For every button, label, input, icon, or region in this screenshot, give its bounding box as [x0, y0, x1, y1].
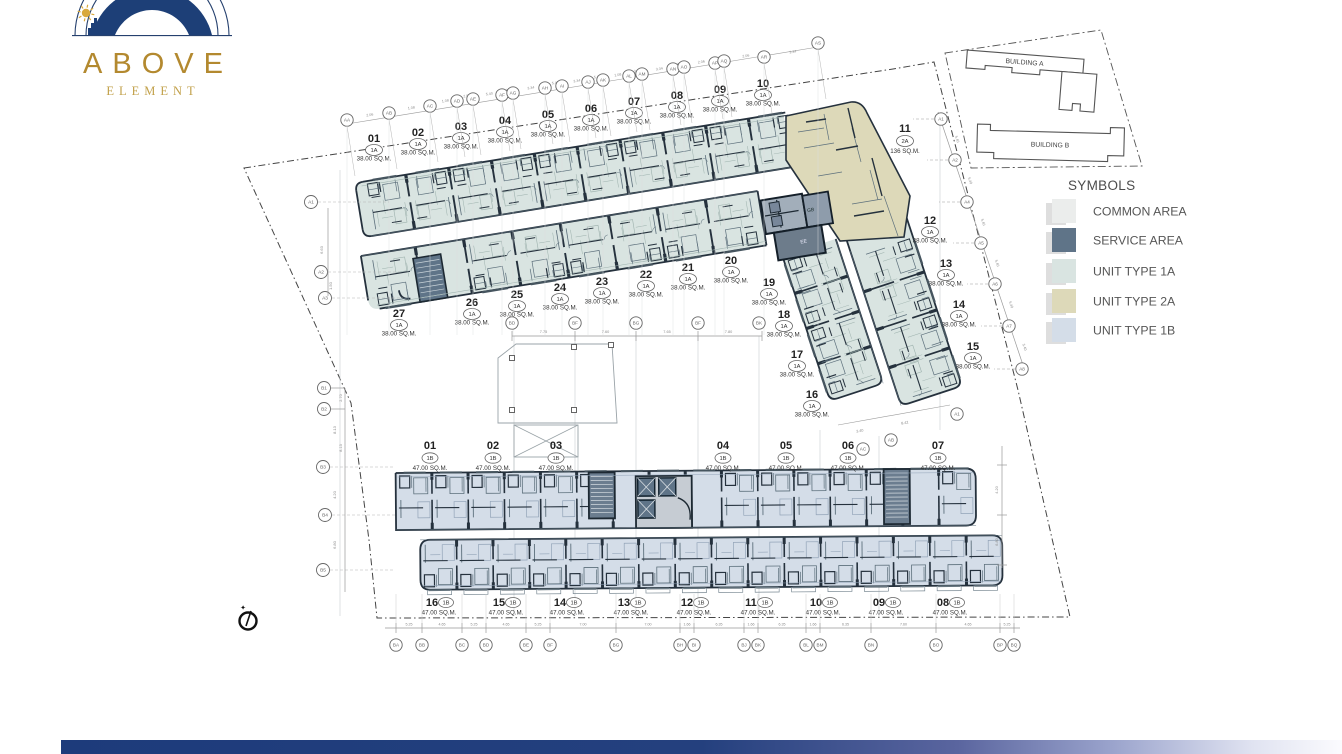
svg-text:7.80: 7.80 — [725, 330, 732, 334]
svg-text:04: 04 — [717, 440, 730, 452]
svg-text:22: 22 — [640, 269, 652, 281]
svg-text:38.00 SQ.M.: 38.00 SQ.M. — [401, 150, 436, 157]
svg-text:BC: BC — [459, 643, 466, 648]
svg-text:BB: BB — [419, 643, 425, 648]
svg-text:1B: 1B — [844, 456, 851, 462]
svg-text:14: 14 — [554, 597, 567, 609]
svg-text:1A: 1A — [684, 277, 691, 283]
svg-text:1B: 1B — [761, 601, 768, 607]
svg-text:6.80: 6.80 — [995, 538, 999, 545]
svg-text:1B: 1B — [826, 601, 833, 607]
svg-text:47.00 SQ.M.: 47.00 SQ.M. — [706, 465, 741, 472]
svg-text:AK: AK — [600, 78, 607, 83]
svg-text:2.70: 2.70 — [339, 394, 343, 401]
svg-text:UNIT TYPE 1B: UNIT TYPE 1B — [1093, 324, 1175, 338]
svg-text:BK: BK — [756, 321, 763, 326]
svg-text:BG: BG — [633, 321, 640, 326]
svg-text:1B: 1B — [570, 601, 577, 607]
svg-text:03: 03 — [550, 440, 562, 452]
svg-text:2A: 2A — [901, 139, 908, 145]
svg-text:BK: BK — [755, 643, 762, 648]
svg-text:1A: 1A — [759, 93, 766, 99]
svg-text:A7: A7 — [1006, 324, 1012, 329]
svg-text:19: 19 — [763, 277, 775, 289]
svg-text:1A: 1A — [457, 136, 464, 142]
svg-text:1B: 1B — [782, 456, 789, 462]
svg-text:38.00 SQ.M.: 38.00 SQ.M. — [746, 101, 781, 108]
svg-text:UNIT TYPE 2A: UNIT TYPE 2A — [1093, 295, 1176, 309]
svg-text:26: 26 — [466, 297, 478, 309]
svg-text:02: 02 — [487, 440, 499, 452]
svg-text:09: 09 — [873, 597, 885, 609]
svg-text:1A: 1A — [673, 105, 680, 111]
svg-text:✦: ✦ — [240, 604, 246, 612]
svg-text:47.00 SQ.M.: 47.00 SQ.M. — [921, 465, 956, 472]
svg-text:1A: 1A — [942, 273, 949, 279]
svg-text:4.20: 4.20 — [332, 490, 337, 499]
svg-text:1A: 1A — [793, 364, 800, 370]
svg-text:AB: AB — [888, 438, 894, 443]
svg-text:AO: AO — [681, 65, 688, 70]
svg-text:1A: 1A — [780, 324, 787, 330]
svg-text:21: 21 — [682, 262, 694, 274]
svg-text:38.00 SQ.M.: 38.00 SQ.M. — [444, 144, 479, 151]
svg-text:AB: AB — [386, 111, 392, 116]
svg-text:38.00 SQ.M.: 38.00 SQ.M. — [956, 364, 991, 371]
svg-text:ELEMENT: ELEMENT — [106, 84, 199, 98]
svg-text:12: 12 — [681, 597, 693, 609]
svg-text:5.25: 5.25 — [406, 623, 413, 627]
svg-text:5.25: 5.25 — [1004, 623, 1011, 627]
svg-text:38.00 SQ.M.: 38.00 SQ.M. — [629, 292, 664, 299]
svg-text:BO: BO — [933, 643, 940, 648]
svg-text:AD: AD — [454, 99, 461, 104]
svg-text:1A: 1A — [955, 314, 962, 320]
svg-text:1B: 1B — [719, 456, 726, 462]
svg-text:08: 08 — [937, 597, 949, 609]
svg-text:AH: AH — [542, 86, 548, 91]
svg-text:1A: 1A — [598, 291, 605, 297]
svg-text:B2: B2 — [321, 407, 327, 413]
svg-text:38.00 SQ.M.: 38.00 SQ.M. — [382, 331, 417, 338]
svg-text:47.00 SQ.M.: 47.00 SQ.M. — [806, 610, 841, 617]
svg-text:COMMON AREA: COMMON AREA — [1093, 205, 1187, 219]
svg-text:8.13: 8.13 — [339, 444, 343, 451]
svg-text:38.00 SQ.M.: 38.00 SQ.M. — [531, 132, 566, 139]
svg-text:136 SQ.M.: 136 SQ.M. — [890, 148, 920, 155]
svg-text:AC: AC — [860, 447, 867, 452]
svg-text:6.35: 6.35 — [779, 623, 786, 627]
svg-text:BD: BD — [509, 321, 516, 326]
svg-text:7.75: 7.75 — [540, 330, 547, 334]
svg-text:05: 05 — [780, 440, 792, 452]
svg-text:1.66: 1.66 — [748, 623, 755, 627]
svg-text:38.00 SQ.M.: 38.00 SQ.M. — [671, 285, 706, 292]
svg-text:BM: BM — [817, 643, 824, 648]
svg-text:47.00 SQ.M.: 47.00 SQ.M. — [422, 610, 457, 617]
svg-text:BF: BF — [572, 321, 578, 326]
svg-text:47.00 SQ.M.: 47.00 SQ.M. — [413, 465, 448, 472]
svg-text:BL: BL — [803, 643, 809, 648]
svg-text:47.00 SQ.M.: 47.00 SQ.M. — [489, 610, 524, 617]
svg-text:BH: BH — [677, 643, 683, 648]
svg-text:AE: AE — [470, 97, 476, 102]
svg-text:A1: A1 — [308, 200, 314, 206]
svg-text:AC: AC — [427, 104, 434, 109]
svg-text:38.00 SQ.M.: 38.00 SQ.M. — [543, 305, 578, 312]
svg-text:47.00 SQ.M.: 47.00 SQ.M. — [550, 610, 585, 617]
svg-text:20: 20 — [725, 255, 737, 267]
svg-text:1B: 1B — [634, 601, 641, 607]
svg-text:23: 23 — [596, 276, 608, 288]
svg-text:BG: BG — [613, 643, 620, 648]
svg-text:38.00 SQ.M.: 38.00 SQ.M. — [455, 320, 490, 327]
svg-text:25: 25 — [511, 289, 523, 301]
svg-text:6.80: 6.80 — [332, 540, 337, 549]
svg-text:38.00 SQ.M.: 38.00 SQ.M. — [795, 412, 830, 419]
svg-text:38.00 SQ.M.: 38.00 SQ.M. — [942, 322, 977, 329]
svg-text:1.66: 1.66 — [684, 623, 691, 627]
svg-text:A1: A1 — [938, 117, 944, 122]
svg-text:16: 16 — [806, 389, 818, 401]
svg-text:24: 24 — [554, 282, 567, 294]
svg-text:AG: AG — [510, 91, 517, 96]
svg-text:BP: BP — [997, 643, 1003, 648]
svg-text:A8: A8 — [1019, 367, 1025, 372]
svg-text:A3: A3 — [322, 296, 328, 302]
svg-text:1B: 1B — [442, 601, 449, 607]
svg-text:A1: A1 — [954, 412, 960, 417]
svg-text:1.66: 1.66 — [810, 623, 817, 627]
svg-text:47.00 SQ.M.: 47.00 SQ.M. — [869, 610, 904, 617]
svg-text:1A: 1A — [468, 312, 475, 318]
svg-text:B1: B1 — [321, 386, 327, 392]
svg-text:1.50: 1.50 — [328, 281, 333, 290]
svg-text:AL: AL — [626, 74, 632, 79]
svg-text:1B: 1B — [426, 456, 433, 462]
svg-text:4.65: 4.65 — [965, 623, 972, 627]
svg-text:ABOVE: ABOVE — [83, 48, 233, 80]
svg-text:47.00 SQ.M.: 47.00 SQ.M. — [933, 610, 968, 617]
svg-text:02: 02 — [412, 127, 424, 139]
svg-text:47.00 SQ.M.: 47.00 SQ.M. — [831, 465, 866, 472]
svg-text:BD: BD — [483, 643, 490, 648]
svg-text:01: 01 — [368, 133, 380, 145]
svg-text:6.35: 6.35 — [842, 623, 849, 627]
svg-text:38.00 SQ.M.: 38.00 SQ.M. — [500, 312, 535, 319]
svg-text:1B: 1B — [953, 601, 960, 607]
svg-text:1A: 1A — [642, 284, 649, 290]
svg-text:47.00 SQ.M.: 47.00 SQ.M. — [769, 465, 804, 472]
svg-text:AR: AR — [761, 55, 768, 60]
svg-text:BI: BI — [692, 643, 696, 648]
svg-text:5.25: 5.25 — [535, 623, 542, 627]
svg-text:AM: AM — [639, 72, 646, 77]
svg-text:1B: 1B — [489, 456, 496, 462]
svg-text:1A: 1A — [414, 142, 421, 148]
svg-text:AP: AP — [712, 61, 718, 66]
svg-text:SERVICE AREA: SERVICE AREA — [1093, 234, 1184, 248]
svg-text:SYMBOLS: SYMBOLS — [1068, 178, 1135, 193]
svg-text:1A: 1A — [556, 297, 563, 303]
svg-text:13: 13 — [940, 258, 952, 270]
svg-text:1B: 1B — [509, 601, 516, 607]
svg-text:BA: BA — [393, 643, 400, 648]
svg-text:7.65: 7.65 — [663, 330, 670, 334]
svg-text:4.20: 4.20 — [995, 486, 999, 493]
svg-text:A5: A5 — [978, 241, 984, 246]
svg-text:1A: 1A — [808, 404, 815, 410]
svg-text:1A: 1A — [727, 270, 734, 276]
svg-text:05: 05 — [542, 109, 554, 121]
svg-text:1A: 1A — [513, 304, 520, 310]
svg-text:4.65: 4.65 — [503, 623, 510, 627]
svg-text:09: 09 — [714, 84, 726, 96]
svg-text:BUILDING B: BUILDING B — [1031, 141, 1070, 149]
svg-text:01: 01 — [424, 440, 436, 452]
svg-text:7.00: 7.00 — [580, 623, 587, 627]
svg-text:B3: B3 — [320, 465, 326, 471]
svg-text:8.13: 8.13 — [332, 425, 337, 434]
svg-text:10: 10 — [810, 597, 822, 609]
svg-text:38.00 SQ.M.: 38.00 SQ.M. — [703, 107, 738, 114]
svg-text:17: 17 — [791, 349, 803, 361]
svg-text:11: 11 — [745, 597, 757, 609]
svg-text:7.00: 7.00 — [645, 623, 652, 627]
svg-text:7.60: 7.60 — [602, 330, 609, 334]
svg-text:7.60: 7.60 — [900, 623, 907, 627]
svg-text:B4: B4 — [322, 513, 328, 519]
svg-text:1B: 1B — [934, 456, 941, 462]
svg-text:38.00 SQ.M.: 38.00 SQ.M. — [752, 300, 787, 307]
svg-text:06: 06 — [842, 440, 854, 452]
svg-text:BF: BF — [547, 643, 553, 648]
svg-text:BF: BF — [695, 321, 701, 326]
svg-text:38.00 SQ.M.: 38.00 SQ.M. — [714, 278, 749, 285]
svg-text:A2: A2 — [952, 158, 958, 163]
svg-text:38.00 SQ.M.: 38.00 SQ.M. — [357, 156, 392, 163]
svg-text:38.00 SQ.M.: 38.00 SQ.M. — [929, 281, 964, 288]
svg-text:4.65: 4.65 — [439, 623, 446, 627]
svg-text:AS: AS — [815, 41, 821, 46]
svg-text:A4: A4 — [964, 200, 970, 205]
svg-text:A2: A2 — [318, 270, 324, 276]
svg-text:BN: BN — [868, 643, 874, 648]
svg-text:47.00 SQ.M.: 47.00 SQ.M. — [614, 610, 649, 617]
svg-text:1B: 1B — [552, 456, 559, 462]
svg-text:1A: 1A — [969, 356, 976, 362]
svg-text:18: 18 — [778, 309, 790, 321]
svg-text:38.00 SQ.M.: 38.00 SQ.M. — [617, 119, 652, 126]
svg-text:38.00 SQ.M.: 38.00 SQ.M. — [488, 138, 523, 145]
svg-text:38.00 SQ.M.: 38.00 SQ.M. — [660, 113, 695, 120]
svg-text:47.00 SQ.M.: 47.00 SQ.M. — [476, 465, 511, 472]
svg-text:27: 27 — [393, 308, 405, 320]
svg-text:BJ: BJ — [741, 643, 746, 648]
svg-text:38.00 SQ.M.: 38.00 SQ.M. — [913, 238, 948, 245]
svg-text:1B: 1B — [697, 601, 704, 607]
svg-text:BE: BE — [523, 643, 529, 648]
svg-text:38.00 SQ.M.: 38.00 SQ.M. — [767, 332, 802, 339]
svg-text:07: 07 — [628, 96, 640, 108]
svg-text:06: 06 — [585, 103, 597, 115]
svg-text:11: 11 — [899, 123, 911, 135]
svg-text:UNIT TYPE 1A: UNIT TYPE 1A — [1093, 265, 1176, 279]
svg-text:12: 12 — [924, 215, 936, 227]
svg-text:15: 15 — [967, 341, 979, 353]
svg-text:AQ: AQ — [721, 59, 728, 64]
svg-text:6.63: 6.63 — [319, 245, 324, 254]
svg-text:6.35: 6.35 — [716, 623, 723, 627]
svg-text:1A: 1A — [395, 323, 402, 329]
svg-text:1A: 1A — [926, 230, 933, 236]
svg-text:38.00 SQ.M.: 38.00 SQ.M. — [574, 126, 609, 133]
svg-text:1A: 1A — [765, 292, 772, 298]
svg-text:07: 07 — [932, 440, 944, 452]
svg-text:13: 13 — [618, 597, 630, 609]
svg-text:AI: AI — [560, 84, 564, 89]
svg-text:47.00 SQ.M.: 47.00 SQ.M. — [539, 465, 574, 472]
svg-text:14: 14 — [953, 299, 966, 311]
svg-text:AA: AA — [344, 118, 351, 123]
svg-text:AF: AF — [499, 93, 505, 98]
svg-text:AN: AN — [670, 67, 676, 72]
svg-text:AJ: AJ — [585, 80, 590, 85]
svg-text:5.25: 5.25 — [471, 623, 478, 627]
svg-text:16: 16 — [426, 597, 438, 609]
svg-text:1A: 1A — [370, 148, 377, 154]
svg-text:38.00 SQ.M.: 38.00 SQ.M. — [780, 372, 815, 379]
svg-text:B5: B5 — [320, 568, 326, 574]
svg-text:BQ: BQ — [1011, 643, 1018, 648]
svg-text:15: 15 — [493, 597, 505, 609]
svg-text:1B: 1B — [889, 601, 896, 607]
svg-text:A6: A6 — [992, 282, 998, 287]
svg-text:38.00 SQ.M.: 38.00 SQ.M. — [585, 299, 620, 306]
